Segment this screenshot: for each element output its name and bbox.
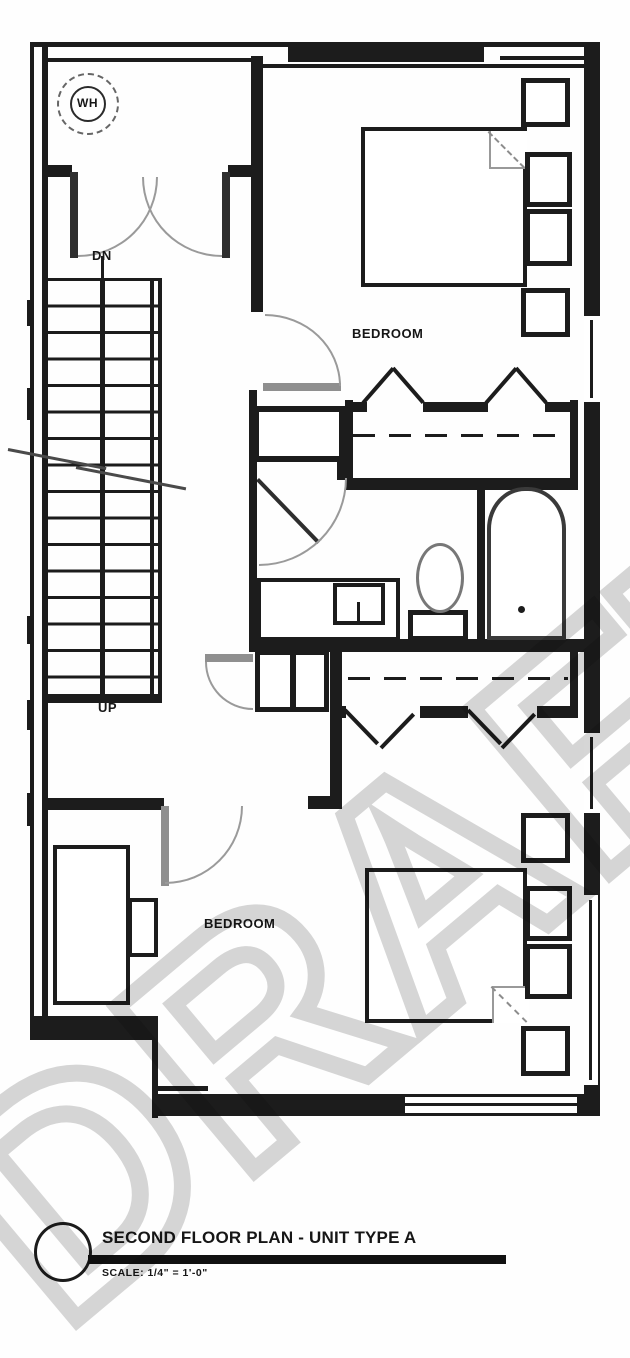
bedroom2-label: BEDROOM <box>204 916 275 931</box>
door-swing-icon <box>142 177 222 257</box>
closet2-foot-seg <box>420 706 468 718</box>
wall-left-notch <box>27 616 34 644</box>
bifold-door-icon <box>391 367 424 404</box>
wall-bedroom2-entry <box>44 798 164 810</box>
drawing-scale: SCALE: 1/4" = 1'-0" <box>102 1267 208 1279</box>
door-swing-icon <box>205 662 253 710</box>
wall-left-notch <box>27 300 34 326</box>
linen-closet <box>253 406 345 462</box>
wall-left-outer <box>30 42 34 1038</box>
nightstand <box>521 288 570 337</box>
stairs-down-label: DN <box>92 248 112 263</box>
bifold-door-icon <box>484 367 517 404</box>
closet1-head-seg <box>423 402 488 412</box>
closet2-cabinet-door-leaf <box>205 654 253 662</box>
wall-hall-bedroom1 <box>251 56 263 312</box>
bathroom-left-wall <box>249 390 257 652</box>
bedroom1-label: BEDROOM <box>352 326 423 341</box>
dresser-side-unit <box>128 898 158 957</box>
window-glass-line <box>405 1103 577 1106</box>
bathtub-drain <box>518 606 525 613</box>
wh-door-leaf-left <box>70 172 78 258</box>
closet-rod-icon <box>353 434 568 437</box>
bifold-door-icon <box>514 367 547 404</box>
closet1-right-wall <box>570 400 578 490</box>
dresser <box>53 845 130 1005</box>
headboard-block <box>525 152 572 207</box>
wall-top-inner-bedroom1 <box>263 64 585 68</box>
bifold-door-icon <box>501 713 537 750</box>
bifold-door-icon <box>467 709 503 746</box>
wall-left-notch <box>27 388 34 420</box>
headboard-block <box>525 209 572 266</box>
wall-left-notch <box>27 793 34 826</box>
wall-hall-bedroom2 <box>330 650 342 808</box>
closet-rod-icon <box>348 677 568 680</box>
wall-top-inner-right <box>500 56 592 60</box>
headboard-block <box>525 886 572 941</box>
door-swing-icon <box>165 806 243 884</box>
nightstand <box>521 78 570 127</box>
stairs-right-wall-line <box>158 278 162 702</box>
detail-bubble-icon <box>34 1222 92 1282</box>
window-glass-line <box>590 737 593 809</box>
door-swing-icon <box>259 478 347 566</box>
bathroom-tub-divider <box>477 484 485 642</box>
closet2-right-wall <box>570 650 578 716</box>
closet2-cabinet-divider <box>290 653 296 710</box>
nightstand <box>521 1026 570 1076</box>
wall-wh-closet-left-seg <box>44 165 72 177</box>
window-glass-line <box>589 900 592 1080</box>
sink-faucet <box>357 602 360 625</box>
window-glass-line <box>590 320 593 398</box>
bifold-door-icon <box>344 709 380 746</box>
wall-bedroom2-stub <box>308 796 342 809</box>
drawing-title: SECOND FLOOR PLAN - UNIT TYPE A <box>102 1228 416 1248</box>
wall-bottom-step-ledge <box>156 1086 208 1091</box>
stairs-up-label: UP <box>98 700 117 715</box>
wall-left-notch <box>27 700 34 730</box>
stairs-icon <box>48 278 162 702</box>
wall-top-inner-left <box>48 58 253 62</box>
nightstand <box>521 813 570 863</box>
closet1-back-wall <box>345 478 578 490</box>
wall-top-solid-band <box>288 42 484 62</box>
wh-door-leaf-right <box>222 172 230 258</box>
water-heater-label: WH <box>77 96 98 110</box>
stairs-direction-tick <box>101 672 104 702</box>
bathtub-icon <box>487 487 566 640</box>
toilet-bowl <box>416 543 464 613</box>
closet1-left-wall <box>345 400 353 490</box>
floor-plan-sheet: WH DN <box>0 0 630 1358</box>
wall-bottom-left <box>30 1016 156 1040</box>
stairs-right-wall-line <box>150 278 154 702</box>
headboard-block <box>525 944 572 999</box>
door-swing-icon <box>265 314 341 386</box>
title-underline <box>88 1255 506 1264</box>
bifold-door-icon <box>380 713 416 750</box>
bifold-door-icon <box>361 367 394 404</box>
stairs-stringer <box>100 278 105 702</box>
toilet-icon <box>408 610 468 641</box>
